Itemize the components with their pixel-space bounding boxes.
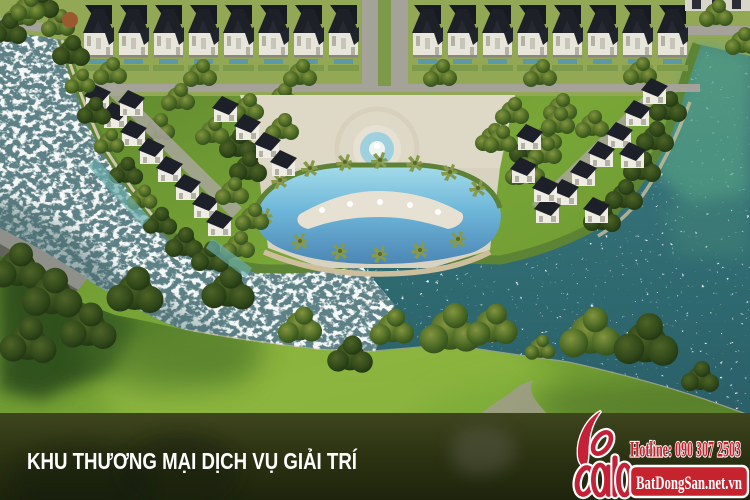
svg-text:Hotline: 090 307 2503: Hotline: 090 307 2503 (630, 437, 741, 462)
svg-text:BatDongSan.net.vn: BatDongSan.net.vn (636, 473, 742, 494)
svg-text:KHU THƯƠNG MẠI DỊCH VỤ GIẢI TR: KHU THƯƠNG MẠI DỊCH VỤ GIẢI TRÍ (27, 446, 357, 474)
